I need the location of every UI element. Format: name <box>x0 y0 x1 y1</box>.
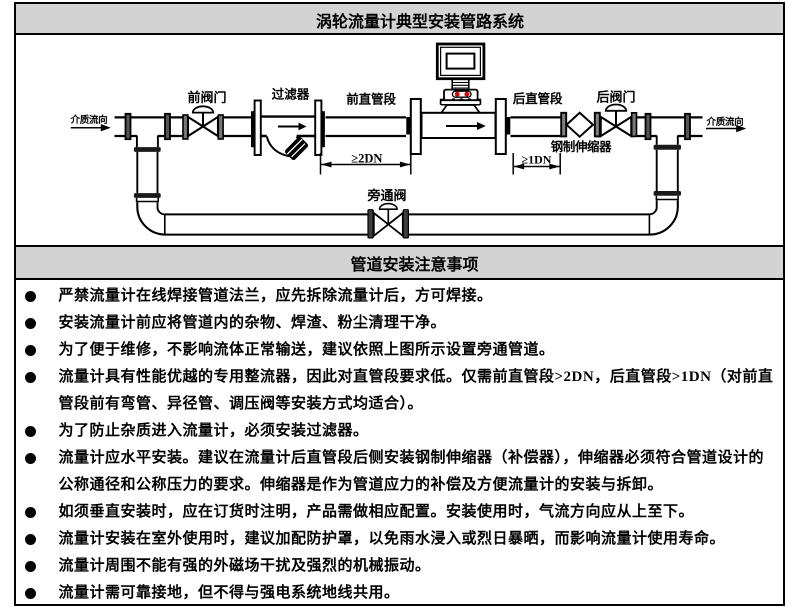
svg-text:钢制伸缩器: 钢制伸缩器 <box>551 139 612 154</box>
svg-text:后阀门: 后阀门 <box>596 90 635 105</box>
svg-text:后直管段: 后直管段 <box>513 91 563 106</box>
svg-text:过滤器: 过滤器 <box>272 87 310 102</box>
svg-text:前直管段: 前直管段 <box>346 92 396 107</box>
svg-text:≥1DN: ≥1DN <box>522 153 552 167</box>
svg-text:≥2DN: ≥2DN <box>351 152 382 166</box>
svg-text:前阀门: 前阀门 <box>187 90 226 105</box>
svg-text:旁通阀: 旁通阀 <box>366 188 406 203</box>
